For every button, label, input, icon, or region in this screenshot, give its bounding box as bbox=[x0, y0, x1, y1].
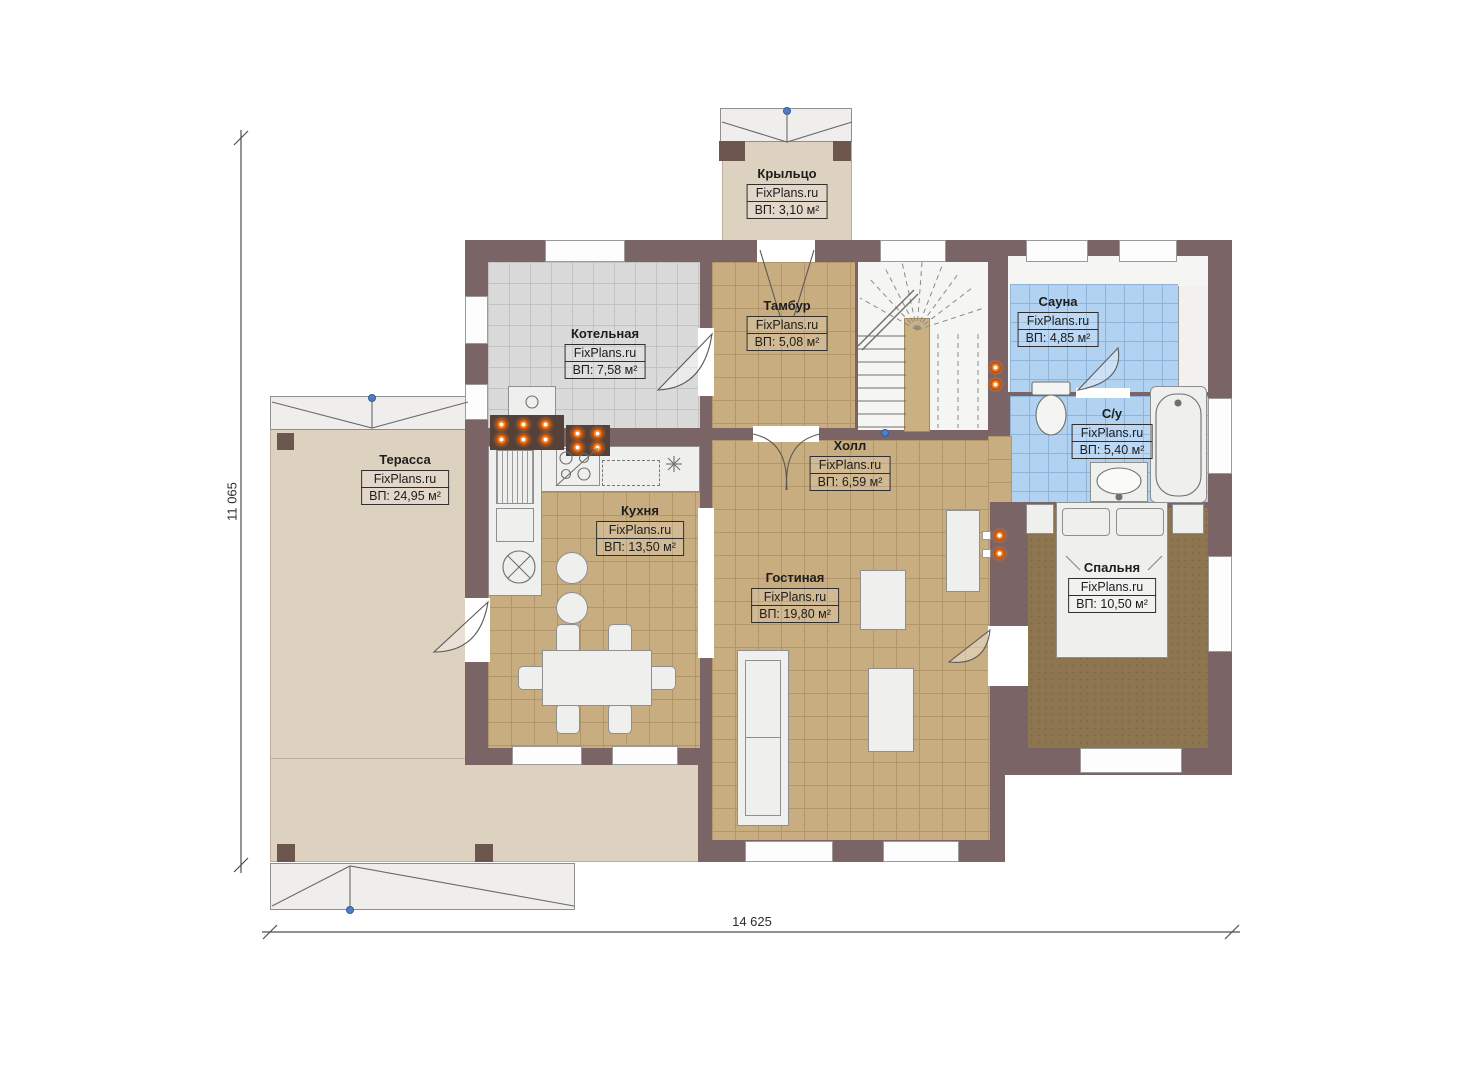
window-boiler-left-2 bbox=[465, 384, 488, 420]
porch-post-left bbox=[719, 141, 745, 161]
room-label-kitchen: Кухня FixPlans.ru ВП: 13,50 м² bbox=[596, 503, 684, 556]
window-kitchen-bottom-1 bbox=[512, 746, 582, 765]
radiator-dot bbox=[592, 428, 603, 439]
entry-door-gap bbox=[757, 240, 815, 262]
room-name: Спальня bbox=[1068, 560, 1156, 575]
room-name: Сауна bbox=[1018, 294, 1099, 309]
area-box: ВП: 13,50 м² bbox=[596, 538, 684, 556]
window-living-bottom-1 bbox=[745, 841, 833, 862]
brand-box: FixPlans.ru bbox=[1068, 578, 1156, 596]
terrace-canopy-bottom bbox=[270, 863, 575, 910]
sauna-bench bbox=[1178, 286, 1208, 392]
dining-chair bbox=[648, 666, 676, 690]
radiator-dot bbox=[540, 419, 551, 430]
pillow-right bbox=[1116, 508, 1164, 536]
radiator-switch bbox=[982, 531, 991, 540]
window-stairs-top bbox=[880, 240, 946, 262]
coffee-table bbox=[868, 668, 914, 752]
room-name: Кухня bbox=[596, 503, 684, 518]
node-marker bbox=[783, 107, 791, 115]
room-name: Терасса bbox=[361, 452, 449, 467]
window-kitchen-bottom-2 bbox=[612, 746, 678, 765]
area-box: ВП: 19,80 м² bbox=[751, 605, 839, 623]
hall-wardrobe bbox=[946, 510, 980, 592]
node-marker bbox=[881, 429, 889, 437]
kitchen-stool-2 bbox=[556, 592, 588, 624]
radiator-dot bbox=[990, 379, 1001, 390]
node-marker bbox=[346, 906, 354, 914]
window-living-bottom-2 bbox=[883, 841, 959, 862]
kitchen-stool-1 bbox=[556, 552, 588, 584]
room-label-terrace: Терасса FixPlans.ru ВП: 24,95 м² bbox=[361, 452, 449, 505]
room-label-vestibule: Тамбур FixPlans.ru ВП: 5,08 м² bbox=[747, 298, 828, 351]
dimension-height-label: 11 065 bbox=[225, 467, 240, 537]
dining-table bbox=[542, 650, 652, 706]
sofa-cushion-divider bbox=[745, 737, 781, 738]
brand-box: FixPlans.ru bbox=[1072, 424, 1153, 442]
brand-box: FixPlans.ru bbox=[1018, 312, 1099, 330]
room-name: С/у bbox=[1072, 406, 1153, 421]
room-name: Холл bbox=[810, 438, 891, 453]
brand-box: FixPlans.ru bbox=[596, 521, 684, 539]
room-label-living: Гостиная FixPlans.ru ВП: 19,80 м² bbox=[751, 570, 839, 623]
area-box: ВП: 5,08 м² bbox=[747, 333, 828, 351]
radiator-dot bbox=[994, 530, 1005, 541]
floor-plan-canvas: Крыльцо FixPlans.ru ВП: 3,10 м² Котельна… bbox=[0, 0, 1474, 1080]
brand-box: FixPlans.ru bbox=[361, 470, 449, 488]
node-marker bbox=[368, 394, 376, 402]
area-box: ВП: 4,85 м² bbox=[1018, 329, 1099, 347]
sofa-seat bbox=[745, 660, 781, 816]
radiator-dot bbox=[496, 434, 507, 445]
nightstand-right bbox=[1172, 504, 1204, 534]
dining-chair bbox=[556, 704, 580, 734]
radiator-dot bbox=[518, 419, 529, 430]
fridge bbox=[496, 450, 534, 504]
stairs-newel bbox=[904, 318, 930, 432]
room-label-hall: Холл FixPlans.ru ВП: 6,59 м² bbox=[810, 438, 891, 491]
brand-box: FixPlans.ru bbox=[747, 184, 828, 202]
area-box: ВП: 3,10 м² bbox=[747, 201, 828, 219]
radiator-switch bbox=[982, 549, 991, 558]
room-name: Котельная bbox=[565, 326, 646, 341]
radiator-dot bbox=[572, 442, 583, 453]
room-name: Тамбур bbox=[747, 298, 828, 313]
radiator-dot bbox=[540, 434, 551, 445]
room-label-bathroom: С/у FixPlans.ru ВП: 5,40 м² bbox=[1072, 406, 1153, 459]
room-label-sauna: Сауна FixPlans.ru ВП: 4,85 м² bbox=[1018, 294, 1099, 347]
window-sauna-top-1 bbox=[1026, 240, 1088, 262]
window-sauna-top-2 bbox=[1119, 240, 1177, 262]
terrace-post-top bbox=[277, 433, 294, 450]
sauna-door-gap bbox=[1076, 388, 1130, 398]
window-boiler-top bbox=[545, 240, 625, 262]
bath-sink-counter bbox=[1090, 462, 1148, 502]
radiator-dot bbox=[496, 419, 507, 430]
nightstand-left bbox=[1026, 504, 1054, 534]
radiator-dot bbox=[994, 548, 1005, 559]
brand-box: FixPlans.ru bbox=[747, 316, 828, 334]
dishwasher bbox=[602, 460, 660, 486]
radiator-dot bbox=[572, 428, 583, 439]
area-box: ВП: 6,59 м² bbox=[810, 473, 891, 491]
terrace-post-bottom-right bbox=[475, 844, 493, 862]
side-table bbox=[860, 570, 906, 630]
radiator-dot bbox=[518, 434, 529, 445]
window-boiler-left-1 bbox=[465, 296, 488, 344]
room-label-porch: Крыльцо FixPlans.ru ВП: 3,10 м² bbox=[747, 166, 828, 219]
boiler-door-gap bbox=[698, 328, 714, 396]
area-box: ВП: 7,58 м² bbox=[565, 361, 646, 379]
bathtub bbox=[1150, 386, 1207, 503]
radiator-dot bbox=[990, 362, 1001, 373]
hall-corridor-floor bbox=[988, 436, 1012, 502]
kitchen-cabinet bbox=[496, 508, 534, 542]
bedroom-door-gap bbox=[988, 626, 1028, 686]
dimension-width-label: 14 625 bbox=[712, 914, 792, 929]
brand-box: FixPlans.ru bbox=[810, 456, 891, 474]
brand-box: FixPlans.ru bbox=[565, 344, 646, 362]
window-bath-right bbox=[1208, 398, 1232, 474]
brand-box: FixPlans.ru bbox=[751, 588, 839, 606]
area-box: ВП: 10,50 м² bbox=[1068, 595, 1156, 613]
room-label-bedroom: Спальня FixPlans.ru ВП: 10,50 м² bbox=[1068, 560, 1156, 613]
terrace-post-bottom-left bbox=[277, 844, 295, 862]
window-bedroom-bottom bbox=[1080, 748, 1182, 773]
room-label-boiler: Котельная FixPlans.ru ВП: 7,58 м² bbox=[565, 326, 646, 379]
room-name: Гостиная bbox=[751, 570, 839, 585]
pillow-left bbox=[1062, 508, 1110, 536]
porch-post-right bbox=[833, 141, 851, 161]
window-bedroom-right bbox=[1208, 556, 1232, 652]
kitchen-living-opening bbox=[698, 508, 714, 658]
room-name: Крыльцо bbox=[747, 166, 828, 181]
area-box: ВП: 24,95 м² bbox=[361, 487, 449, 505]
kitchen-terrace-door-gap bbox=[465, 598, 490, 662]
area-box: ВП: 5,40 м² bbox=[1072, 441, 1153, 459]
dining-chair bbox=[608, 704, 632, 734]
radiator-dot bbox=[592, 442, 603, 453]
